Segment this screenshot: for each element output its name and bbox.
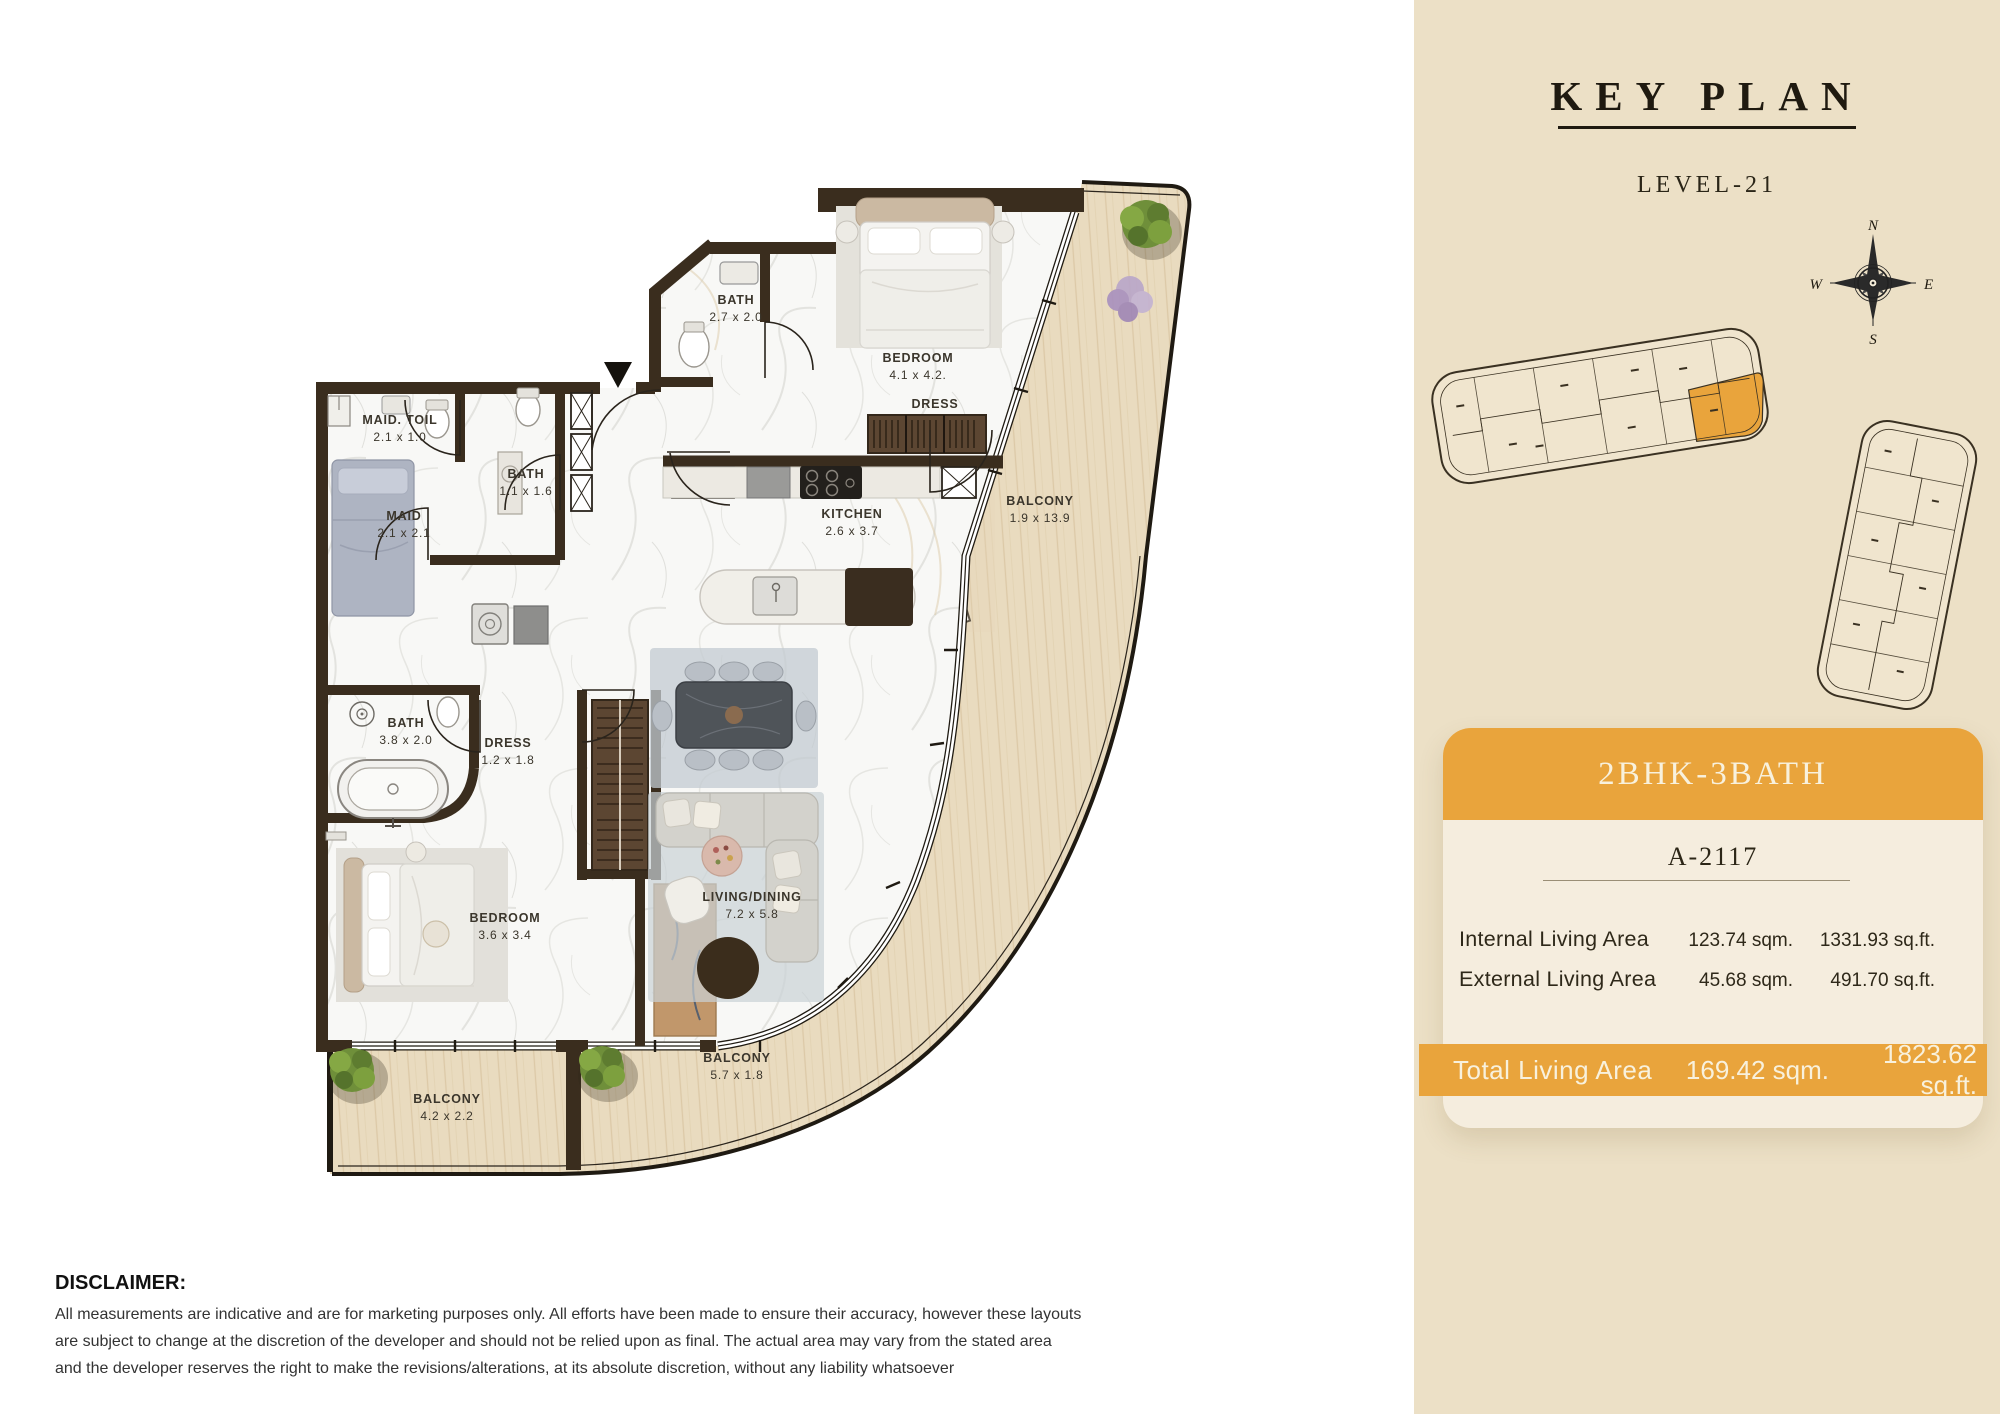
room-label: BALCONY — [1006, 494, 1073, 508]
side-table — [406, 842, 426, 862]
floor-plan: BATH 2.7 x 2.0 BEDROOM 4.1 x 4.2. DRESS … — [0, 0, 1414, 1414]
internal-area-label: Internal Living Area — [1459, 927, 1679, 952]
room-dims: 3.6 x 3.4 — [478, 928, 531, 942]
key-plan-building-2 — [1813, 417, 1980, 714]
room-label: BALCONY — [703, 1051, 770, 1065]
external-area-sqft: 491.70 sq.ft. — [1793, 970, 1983, 992]
room-dims: 1.9 x 13.9 — [1010, 511, 1071, 525]
key-plan-panel: KEY PLAN LEVEL-21 N S W E — [1414, 0, 2000, 1414]
room-label: KITCHEN — [821, 507, 882, 521]
island-sink — [753, 577, 797, 615]
total-area-sqft: 1823.62 sq.ft. — [1829, 1039, 1987, 1101]
room-dims: 7.2 x 5.8 — [725, 907, 778, 921]
key-plan-graphics: N S W E — [1414, 0, 2000, 1414]
centerpiece — [725, 706, 743, 724]
unit-number: A-2117 — [1443, 842, 1983, 872]
unit-type-label: 2BHK-3BATH — [1598, 756, 1828, 793]
room-dims: 5.7 x 1.8 — [710, 1068, 763, 1082]
room-dims: 4.1 x 4.2. — [889, 368, 946, 382]
entrance-arrow-icon — [604, 362, 632, 388]
compass-icon: N S W E — [1810, 218, 1934, 348]
external-area-sqm: 45.68 sqm. — [1679, 970, 1793, 992]
room-dims: 1.2 x 1.8 — [481, 753, 534, 767]
coffee-table — [702, 836, 742, 876]
room-dims: 1.1 x 1.6 — [499, 484, 552, 498]
stool — [423, 921, 449, 947]
compass-west: W — [1810, 277, 1824, 293]
room-label: BEDROOM — [470, 911, 541, 925]
room-dims: 2.7 x 2.0 — [709, 310, 762, 324]
nightstand — [992, 221, 1014, 243]
room-label: BATH — [508, 467, 545, 481]
room-label: LIVING/DINING — [702, 890, 801, 904]
room-dims: 2.1 x 1.0 — [373, 430, 426, 444]
balcony-divider-wall — [566, 1048, 581, 1170]
kitchen-island — [700, 568, 915, 626]
wardrobe-top — [868, 415, 986, 453]
external-area-row: External Living Area 45.68 sqm. 491.70 s… — [1443, 967, 1983, 995]
room-dims: 2.1 x 2.1 — [377, 526, 430, 540]
internal-area-row: Internal Living Area 123.74 sqm. 1331.93… — [1443, 927, 1983, 955]
kitchen-sink-cabinet — [747, 467, 790, 498]
page: BATH 2.7 x 2.0 BEDROOM 4.1 x 4.2. DRESS … — [0, 0, 2000, 1414]
island-dark-counter — [845, 568, 913, 626]
unit-type-header: 2BHK-3BATH — [1443, 728, 1983, 820]
disclaimer-line: and the developer reserves the right to … — [55, 1355, 1085, 1382]
compass-south: S — [1869, 332, 1877, 348]
disclaimer-line: All measurements are indicative and are … — [55, 1301, 1085, 1328]
room-label: BALCONY — [413, 1092, 480, 1106]
room-label: MAID. TOIL — [362, 413, 437, 427]
room-dims: 3.8 x 2.0 — [379, 733, 432, 747]
master-bed — [836, 198, 1014, 348]
stove-icon — [800, 466, 862, 499]
toilet-icon — [437, 697, 459, 727]
room-label: DRESS — [484, 736, 531, 750]
vanity — [326, 832, 346, 840]
internal-area-sqm: 123.74 sqm. — [1679, 930, 1793, 952]
total-area-sqm: 169.42 sqm. — [1679, 1055, 1829, 1086]
disclaimer: DISCLAIMER: All measurements are indicat… — [55, 1272, 1085, 1382]
compass-north: N — [1867, 218, 1879, 234]
nightstand — [836, 221, 858, 243]
round-ottoman — [697, 937, 759, 999]
room-label: BATH — [718, 293, 755, 307]
disclaimer-heading: DISCLAIMER: — [55, 1272, 1085, 1295]
room-dims: 4.2 x 2.2 — [420, 1109, 473, 1123]
external-area-label: External Living Area — [1459, 967, 1679, 992]
unit-number-rule — [1543, 880, 1850, 881]
room-label: DRESS — [911, 397, 958, 411]
internal-area-sqft: 1331.93 sq.ft. — [1793, 930, 1983, 952]
disclaimer-line: are subject to change at the discretion … — [55, 1328, 1085, 1355]
room-label: BATH — [388, 716, 425, 730]
dining-set — [650, 648, 818, 788]
total-area-band: Total Living Area 169.42 sqm. 1823.62 sq… — [1419, 1044, 1987, 1096]
total-area-label: Total Living Area — [1419, 1055, 1679, 1086]
compass-east: E — [1923, 277, 1933, 293]
room-dims: 2.6 x 3.7 — [825, 524, 878, 538]
key-plan-building-1 — [1428, 325, 1772, 487]
room-label: MAID — [386, 509, 421, 523]
room-label: BEDROOM — [883, 351, 954, 365]
